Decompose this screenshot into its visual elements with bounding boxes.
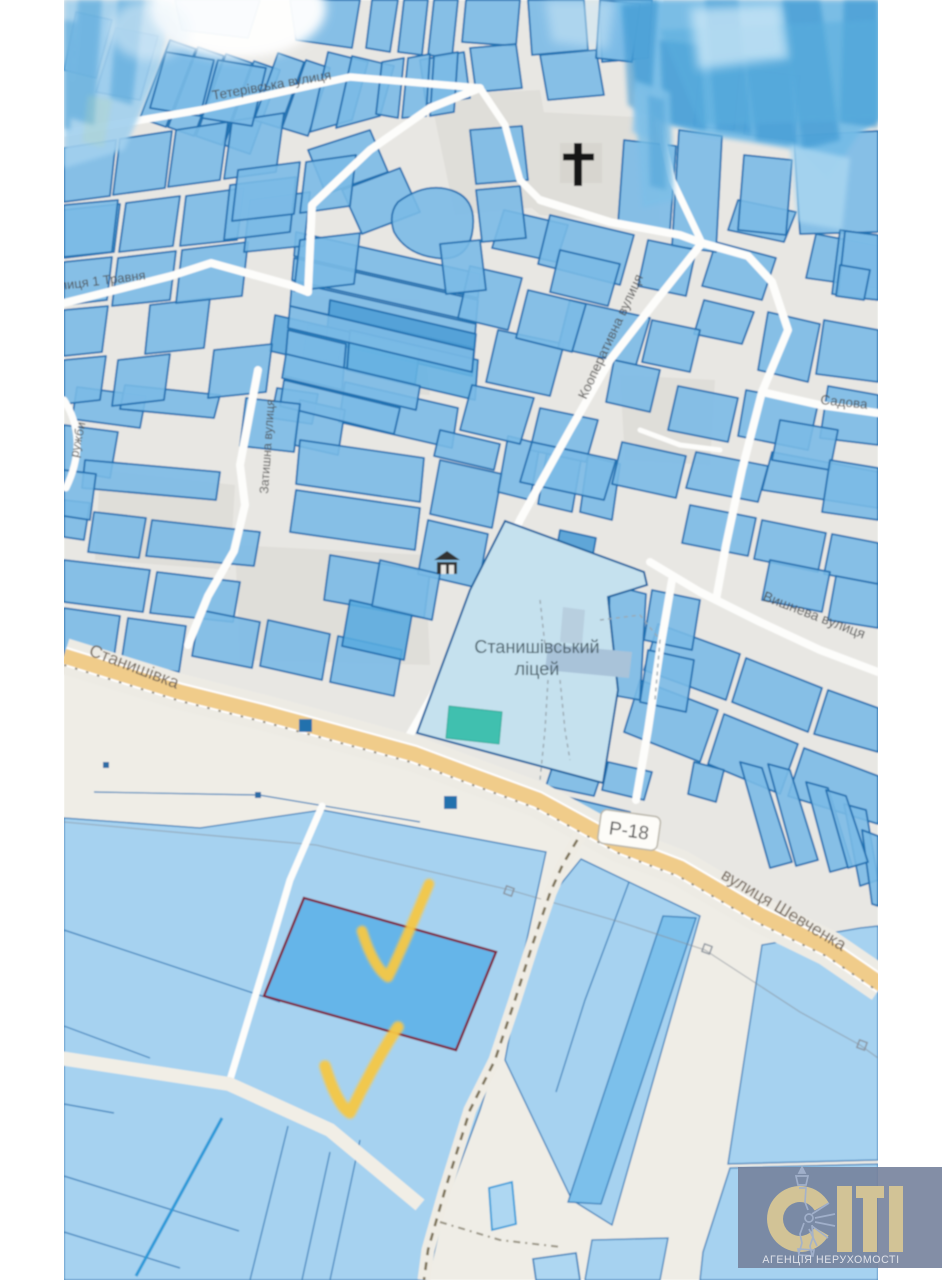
svg-text:ліцей: ліцей	[515, 659, 560, 679]
svg-text:Станишівський: Станишівський	[474, 637, 599, 657]
svg-text:АГЕНЦІЯ НЕРУХОМОСТІ: АГЕНЦІЯ НЕРУХОМОСТІ	[762, 1254, 899, 1266]
